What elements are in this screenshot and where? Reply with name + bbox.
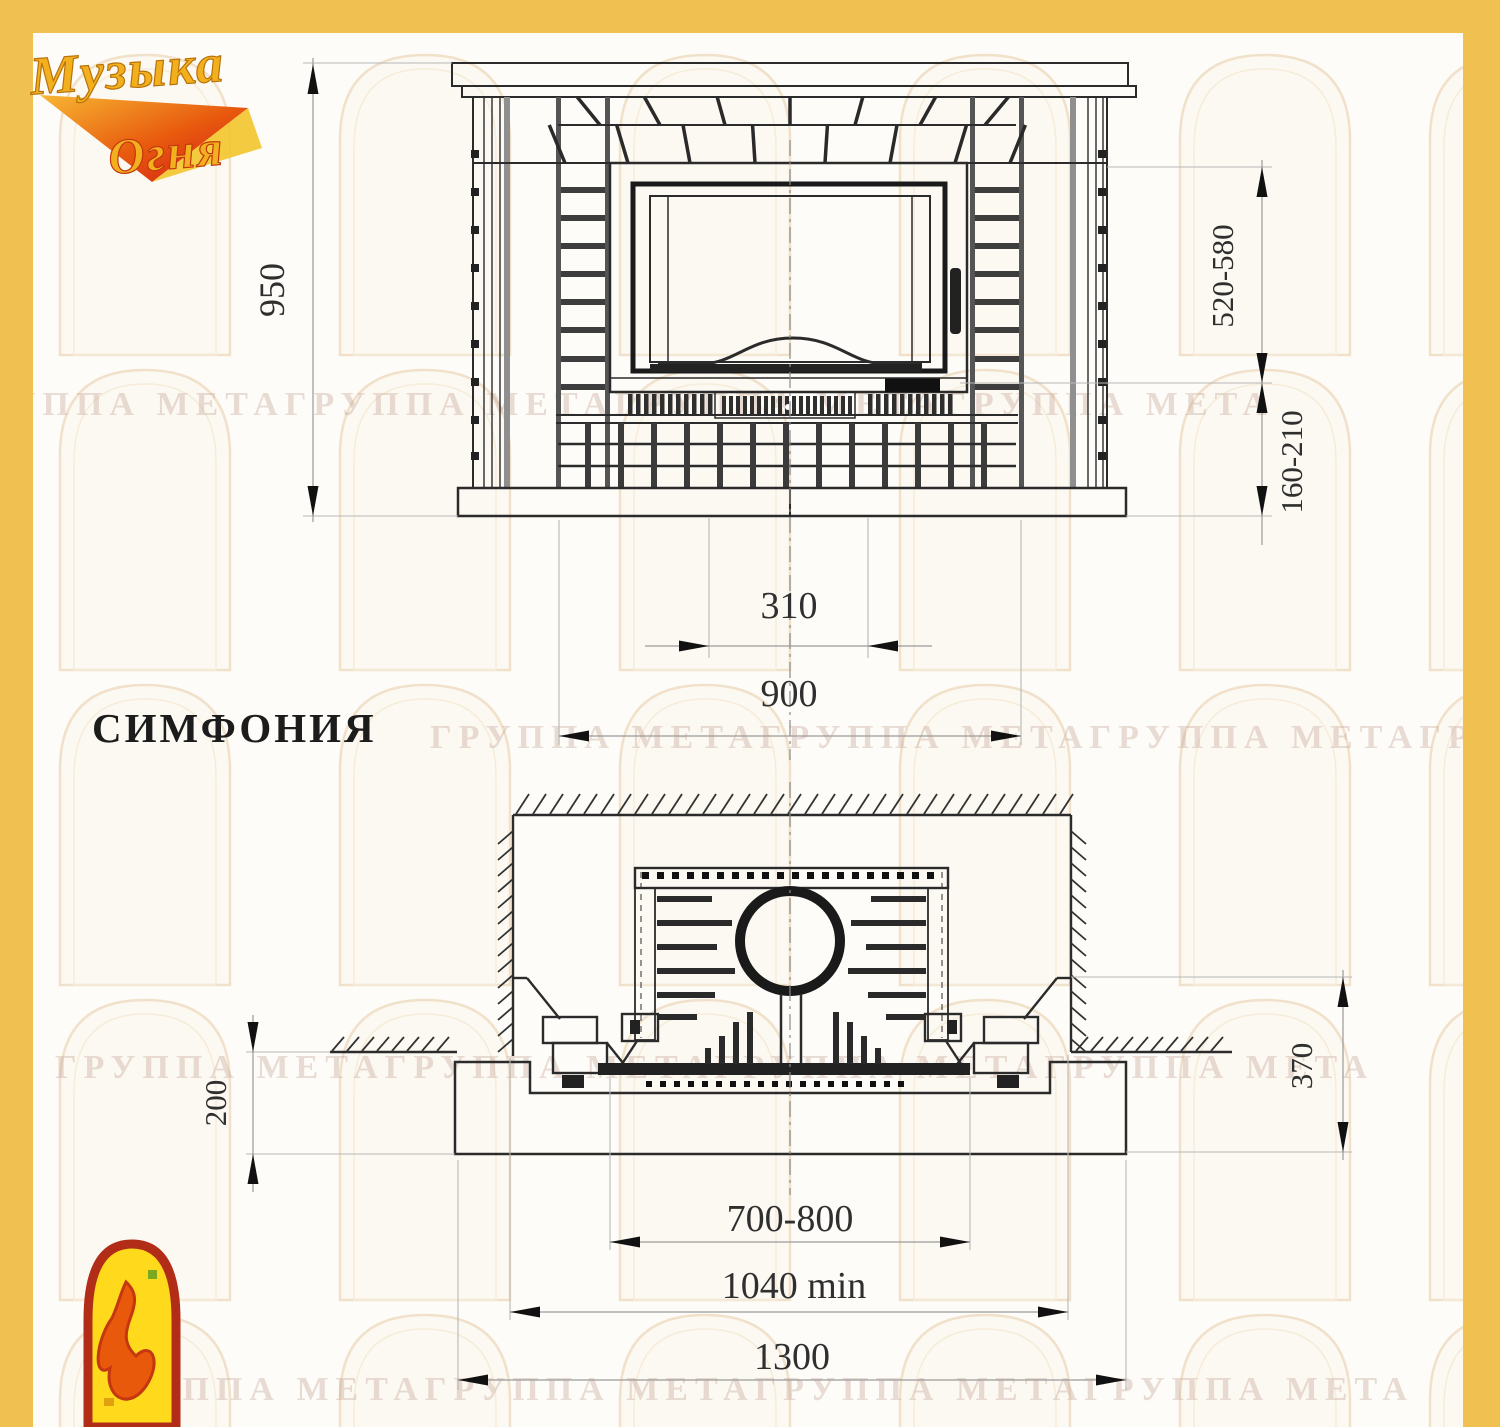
catalog-page: ГРУППА МЕТАГРУППА МЕТАГРУППА МЕТАГРУППА …: [0, 0, 1500, 1427]
flame-arch-icon: [0, 0, 1500, 1427]
